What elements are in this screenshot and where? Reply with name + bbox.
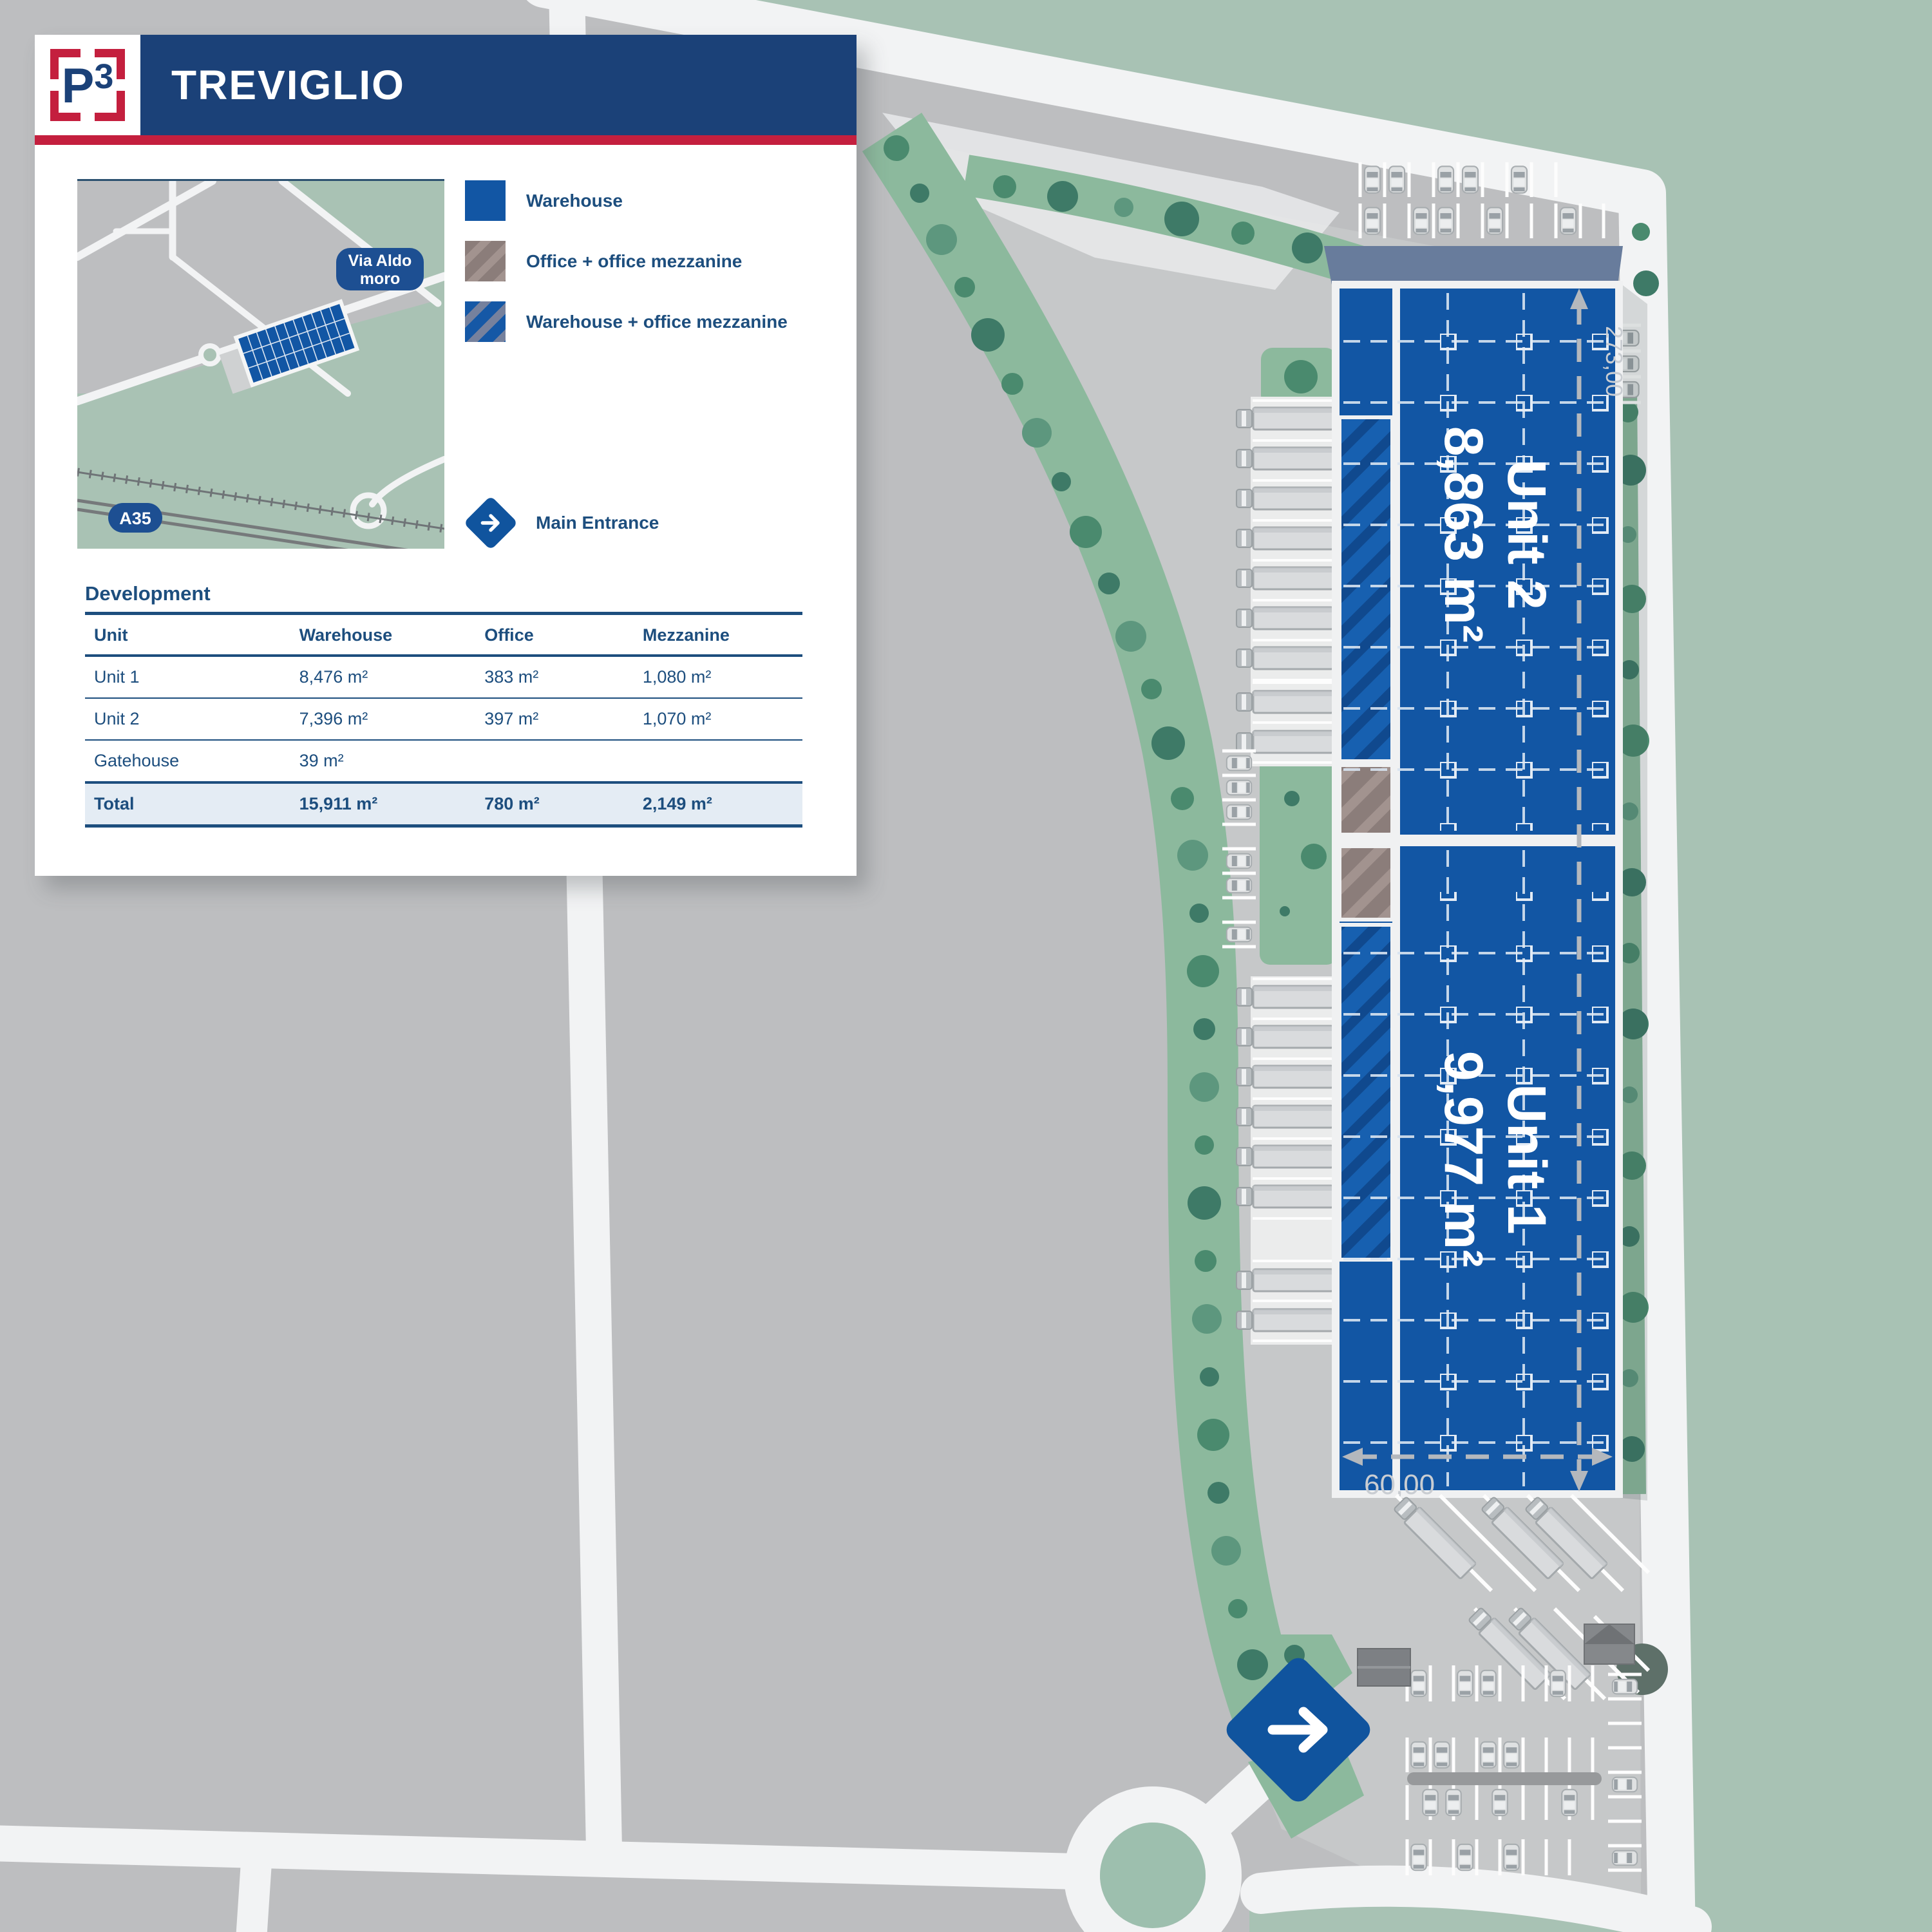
legend-item-warehouse-office-mezzanine: Warehouse + office mezzanine [465, 301, 788, 342]
logo-bracket-icon [95, 49, 125, 79]
unit1-name: Unit 1 [1497, 1084, 1557, 1234]
svg-text:Via Aldo: Via Aldo [348, 252, 412, 270]
legend: Warehouse Office + office mezzanine Ware… [465, 180, 788, 362]
main-entrance-icon [461, 493, 520, 553]
legend-item-warehouse: Warehouse [465, 180, 788, 221]
unit2-area: 8,863 m² [1434, 426, 1494, 643]
office-mezzanine-swatch-icon [465, 241, 506, 281]
a35-badge: A35 [108, 503, 162, 533]
dev-column-warehouse: Warehouse [294, 614, 480, 656]
table-row: Unit 27,396 m²397 m²1,070 m² [85, 698, 802, 740]
unit1-office [1340, 846, 1392, 920]
development-table: UnitWarehouseOfficeMezzanineUnit 18,476 … [85, 612, 802, 828]
table-row: Unit 18,476 m²383 m²1,080 m² [85, 656, 802, 698]
technical-building [1584, 1624, 1634, 1664]
main-entrance-key: Main Entrance [461, 493, 659, 553]
via-aldo-moro-badge: Via Aldo moro [336, 248, 424, 290]
table-total-row: Total15,911 m²780 m²2,149 m² [85, 782, 802, 826]
legend-item-office-mezzanine: Office + office mezzanine [465, 241, 788, 281]
roundabout-island [1100, 1823, 1206, 1928]
logo-bracket-icon [50, 49, 80, 79]
roof-edge [1324, 246, 1623, 285]
dim-273-label: 273,00 [1601, 326, 1627, 397]
card-header: P3 TREVIGLIO [35, 35, 857, 135]
minimap-roundabout [201, 346, 219, 364]
gatehouse [1358, 1649, 1410, 1686]
logo-bracket-icon [95, 91, 125, 121]
unit1-warehouse-office-mezzanine [1340, 925, 1392, 1260]
logo-bracket-icon [50, 91, 80, 121]
dim-60-label: 60,00 [1364, 1469, 1435, 1501]
site-plan-poster: 273,00 60,00 Unit 2 8,863 m² Unit 1 9,97… [0, 0, 1932, 1932]
main-entrance-label: Main Entrance [536, 513, 659, 533]
warehouse-building: 273,00 60,00 Unit 2 8,863 m² Unit 1 9,97… [1324, 246, 1647, 1501]
dev-column-mezzanine: Mezzanine [638, 614, 802, 656]
p3-logo: P3 [35, 35, 140, 135]
unit2-name: Unit 2 [1497, 459, 1557, 609]
page-title: TREVIGLIO [140, 35, 857, 135]
svg-text:moro: moro [360, 270, 401, 288]
dev-column-office: Office [479, 614, 638, 656]
development-heading: Development [85, 582, 211, 605]
location-minimap: Via Aldo moro A35 [77, 179, 444, 551]
svg-text:A35: A35 [119, 509, 151, 528]
unit2-office [1340, 765, 1392, 835]
table-row: Gatehouse39 m² [85, 740, 802, 782]
unit1-area: 9,977 m² [1434, 1051, 1494, 1267]
warehouse-swatch-icon [465, 180, 506, 221]
dev-column-unit: Unit [85, 614, 294, 656]
warehouse-office-mezzanine-swatch-icon [465, 301, 506, 342]
accent-stripe [35, 135, 857, 145]
info-card: P3 TREVIGLIO [35, 35, 857, 876]
